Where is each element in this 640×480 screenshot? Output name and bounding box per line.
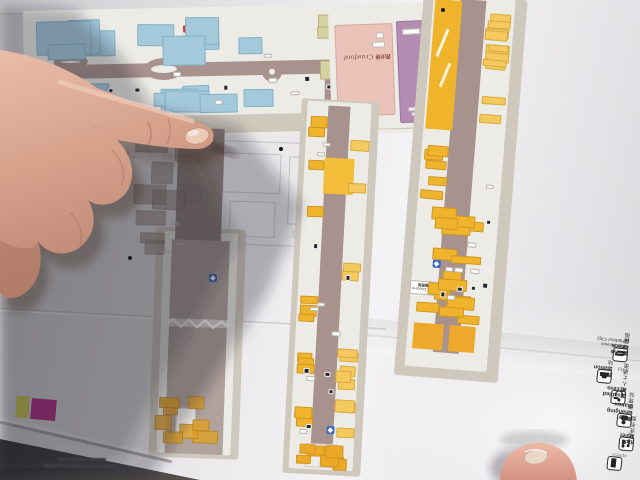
photo-canvas: Lane Crawford 連卡佛 xyxy=(0,0,640,480)
map-shop-block xyxy=(486,219,491,225)
map-shop-block xyxy=(470,269,480,275)
mall-info-marker-icon xyxy=(209,274,217,282)
map-shop-block xyxy=(244,89,274,107)
map-shop-block xyxy=(108,88,113,93)
map-shop-block xyxy=(343,262,362,272)
map-shop-block xyxy=(47,43,86,61)
map-shop-block xyxy=(325,445,344,458)
map-shop-block xyxy=(159,396,180,408)
map-shop-block xyxy=(317,302,326,307)
map-title-blurred xyxy=(26,450,116,470)
map-shop-block xyxy=(298,313,315,322)
map-shop-block xyxy=(303,367,309,373)
map-shop-block xyxy=(55,88,89,111)
map-shop-block xyxy=(447,294,455,299)
map-shop-block xyxy=(348,183,367,193)
map-shop-block xyxy=(174,140,200,163)
shop-number-label xyxy=(402,28,420,35)
map-shop-block xyxy=(412,322,444,350)
shop-number-label xyxy=(376,32,384,38)
map-shop-block xyxy=(300,295,318,304)
map-shop-block xyxy=(427,145,449,157)
map-shop-block xyxy=(304,76,310,82)
map-shop-block xyxy=(306,375,315,380)
map-shop-block xyxy=(238,37,263,55)
map-shop-block xyxy=(192,419,209,431)
map-shop-block xyxy=(172,222,181,226)
map-shop-block xyxy=(154,415,171,430)
map-break-zigzag xyxy=(165,315,229,331)
map-shop-block xyxy=(332,331,341,336)
map-shop-block xyxy=(445,266,454,271)
map-shop-block xyxy=(223,85,228,91)
mall-info-marker-icon xyxy=(326,426,334,434)
map-strip-left xyxy=(122,126,264,464)
map-shop-block xyxy=(334,399,355,413)
map-shop-block xyxy=(439,306,464,318)
map-shop-block xyxy=(479,114,501,125)
map-shop-block xyxy=(152,190,186,212)
fold-dot xyxy=(279,147,283,151)
store-script-logo xyxy=(435,28,449,57)
map-shop-block xyxy=(313,243,319,249)
map-shop-block xyxy=(428,176,447,187)
map-shop-block xyxy=(435,216,459,230)
map-shop-block xyxy=(308,127,326,138)
map-shop-block xyxy=(336,427,354,438)
cutoff-text: d Rd xyxy=(618,365,629,372)
map-shop-block xyxy=(336,370,352,383)
map-shop-block xyxy=(150,161,173,184)
map-shop-block xyxy=(135,138,168,153)
map-shop-block xyxy=(482,282,488,288)
map-shop-block xyxy=(307,206,324,218)
map-shop-block xyxy=(269,78,278,83)
map-shop-block xyxy=(324,372,330,378)
map-shop-block xyxy=(438,278,468,292)
map-shop-block xyxy=(162,35,205,65)
map-shop-block xyxy=(471,286,477,292)
map-shop-block xyxy=(154,214,163,218)
map-shop-block xyxy=(345,275,351,281)
store-name-zh: 連卡佛 xyxy=(375,53,390,61)
map-shop-block xyxy=(291,91,300,96)
fold-dot xyxy=(128,256,132,260)
store-script-logo xyxy=(439,62,451,87)
map-shop-block xyxy=(467,242,477,247)
map-shop-block xyxy=(163,431,183,444)
cutoff-text: el xyxy=(628,430,633,436)
fold-dot xyxy=(441,8,445,12)
map-shop-block xyxy=(294,406,313,419)
map-shop-block xyxy=(215,100,224,105)
map-shop-block xyxy=(162,155,171,159)
map-shop-block xyxy=(263,54,271,58)
store-block-lime xyxy=(15,396,30,419)
map-shop-block xyxy=(173,71,181,76)
map-shop-block xyxy=(134,87,140,93)
map-shop-block xyxy=(308,159,324,170)
map-shop-block xyxy=(448,325,476,353)
map-shop-block xyxy=(337,348,357,358)
map-shop-block xyxy=(299,429,308,434)
map-shop-block xyxy=(296,454,312,464)
store-block-magenta xyxy=(30,398,57,421)
map-shop-block xyxy=(188,396,204,409)
map-shop-block xyxy=(322,142,331,147)
mall-info-marker-icon xyxy=(432,260,441,269)
shop-number-label xyxy=(372,41,385,47)
map-shop-block xyxy=(456,287,462,293)
map-shop-block xyxy=(350,139,369,151)
store-label: Lane Crawford 連卡佛 xyxy=(341,60,391,62)
map-shop-block xyxy=(329,389,335,395)
map-shop-block xyxy=(161,250,169,254)
map-shop-block xyxy=(310,307,319,311)
map-shop-block xyxy=(300,444,316,455)
map-shop-block xyxy=(305,424,311,430)
map-shop-block xyxy=(440,292,446,298)
map-shop-block xyxy=(140,232,165,243)
